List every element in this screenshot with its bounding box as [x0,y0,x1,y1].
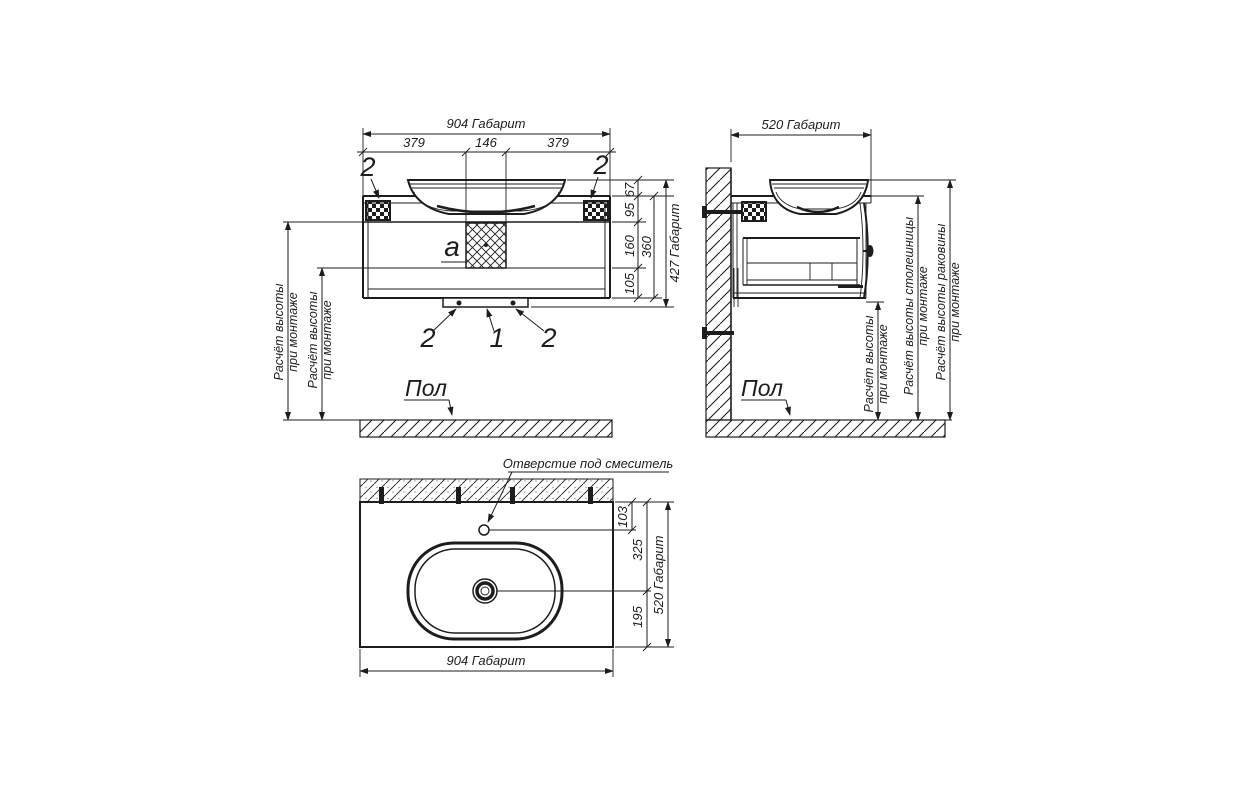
front-callout-rail-left: 2 [419,323,435,353]
front-dim-h360: 360 [639,235,654,257]
front-dim-center: 146 [475,135,497,150]
front-floor-hatch [360,420,612,437]
plan-dim-overall-depth: 520 Габарит [651,535,666,614]
plan-view: Отверстие под смеситель 103 325 195 520 … [360,456,674,677]
plan-dim-drain-to-front: 195 [630,605,645,627]
side-view: 520 Габарит [702,117,962,437]
side-floor-hatch [706,420,945,437]
front-dim-overall-height: 427 Габарит [667,203,682,282]
front-height-note-1-line2: при монтаже [286,292,300,371]
front-callout-rail-right: 2 [540,323,556,353]
front-basin [408,180,565,214]
front-dim-h105: 105 [622,272,637,294]
front-height-note-2-line2: при монтаже [320,300,334,379]
side-height-note-line1: Расчёт высоты [862,316,876,413]
front-callout-bracket-right: 2 [592,150,608,180]
front-dim-h67: 67 [622,182,637,197]
front-dim-h160: 160 [622,234,637,256]
plan-faucet-hole-label: Отверстие под смеситель [503,456,674,471]
plan-dim-overall-width: 904 Габарит [446,653,525,668]
side-basin-note-line1: Расчёт высоты раковины [934,224,948,381]
front-dim-left: 379 [403,135,425,150]
side-floor-label: Пол [741,375,783,401]
side-bracket [742,202,766,221]
front-height-note-2-line1: Расчёт высоты [306,292,320,389]
front-dim-right: 379 [547,135,569,150]
front-view: 904 Габарит 379 146 379 2 [272,116,682,437]
front-height-note-1-line1: Расчёт высоты [272,284,286,381]
side-door-knob [867,245,874,257]
front-callout-drain: 1 [489,323,504,353]
front-callout-detail: a [444,231,460,262]
drawing-canvas: 904 Габарит 379 146 379 2 [0,0,1241,800]
front-bracket-left [366,201,390,220]
side-countertop-note-line2: при монтаже [916,266,930,345]
side-dim-overall-depth: 520 Габарит [761,117,840,132]
front-callout-bracket-left: 2 [359,152,375,182]
side-height-note-line2: при монтаже [876,324,890,403]
plan-dim-hole-offset: 103 [615,505,630,527]
front-bracket-right [584,201,608,220]
side-basin-note-line2: при монтаже [948,262,962,341]
side-drawer [743,238,860,285]
plan-wall-hatch [360,479,613,502]
side-basin [770,180,868,214]
front-floor-label: Пол [405,375,447,401]
side-wall-hatch [706,168,731,420]
plan-dim-drain-offset: 325 [630,538,645,560]
plan-countertop [360,502,613,647]
side-countertop-note-line1: Расчёт высоты столешницы [902,217,916,395]
technical-drawing: 904 Габарит 379 146 379 2 [0,0,1241,800]
front-dim-overall-width: 904 Габарит [446,116,525,131]
front-dim-h95: 95 [622,202,637,217]
plan-faucet-hole [479,525,489,535]
